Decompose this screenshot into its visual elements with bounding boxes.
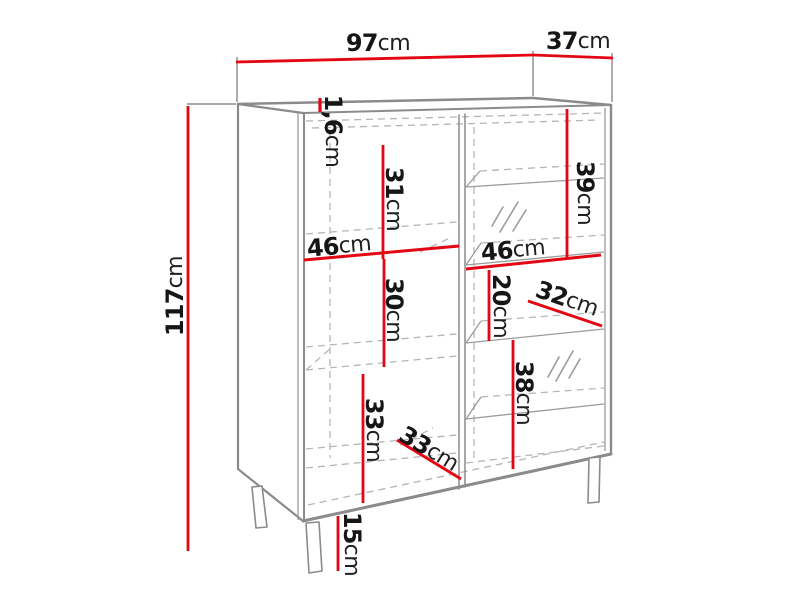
leg-back-left	[252, 486, 267, 528]
dimension-label-right-lower: 38cm	[510, 361, 538, 425]
glass-hatch-icon	[569, 359, 580, 378]
glass-hatch-icon	[492, 207, 503, 226]
right-shelf4-back	[481, 388, 604, 397]
top-inner-dashed-2	[312, 120, 600, 128]
dimension-label-leg-height: 15cm	[338, 512, 366, 576]
left-shelf2-back	[306, 334, 457, 347]
dimension-label-top-thickness: 1,6cm	[319, 95, 347, 168]
dimension-label-width: 97cm	[346, 29, 410, 57]
left-shelf2-front	[306, 356, 457, 370]
dimension-label-left-shelf-depth: 33cm	[394, 420, 464, 477]
dimension-label-right-upper: 39cm	[571, 161, 599, 225]
right-shelf1-side	[466, 171, 480, 187]
left-panel-bottom-edge	[238, 469, 303, 521]
diagram-canvas: 97cm 37cm 117cm 1,6cm 31cm 46cm 30cm 33c…	[0, 0, 800, 600]
dimension-label-left-upper: 31cm	[380, 167, 408, 231]
cabinet-dimension-diagram: 97cm 37cm 117cm 1,6cm 31cm 46cm 30cm 33c…	[0, 0, 800, 600]
dimension-label-right-middle: 20cm	[487, 274, 515, 338]
dimension-label-depth: 37cm	[546, 27, 610, 55]
top-back-edge	[238, 98, 533, 104]
top-inner-dashed-1	[306, 113, 606, 121]
front-top-edge	[303, 105, 611, 113]
left-shelf2-depth	[306, 348, 331, 370]
leg-front-left	[306, 522, 322, 573]
dimension-label-left-shelf-width: 46cm	[306, 229, 373, 263]
dimension-label-height: 117cm	[161, 256, 189, 336]
right-shelf3-front	[466, 329, 604, 343]
glass-hatch-icon	[513, 210, 526, 231]
dimension-label-left-lower: 33cm	[360, 398, 388, 462]
dimension-line-depth	[533, 55, 613, 58]
dimension-label-left-middle: 30cm	[380, 278, 408, 342]
glass-hatch-icon	[548, 357, 559, 377]
left-panel-top-edge	[238, 104, 303, 113]
top-right-edge	[533, 98, 611, 105]
leg-front-right	[588, 457, 600, 503]
dimension-labels: 97cm 37cm 117cm 1,6cm 31cm 46cm 30cm 33c…	[161, 27, 610, 576]
dimension-line-width	[236, 55, 533, 62]
